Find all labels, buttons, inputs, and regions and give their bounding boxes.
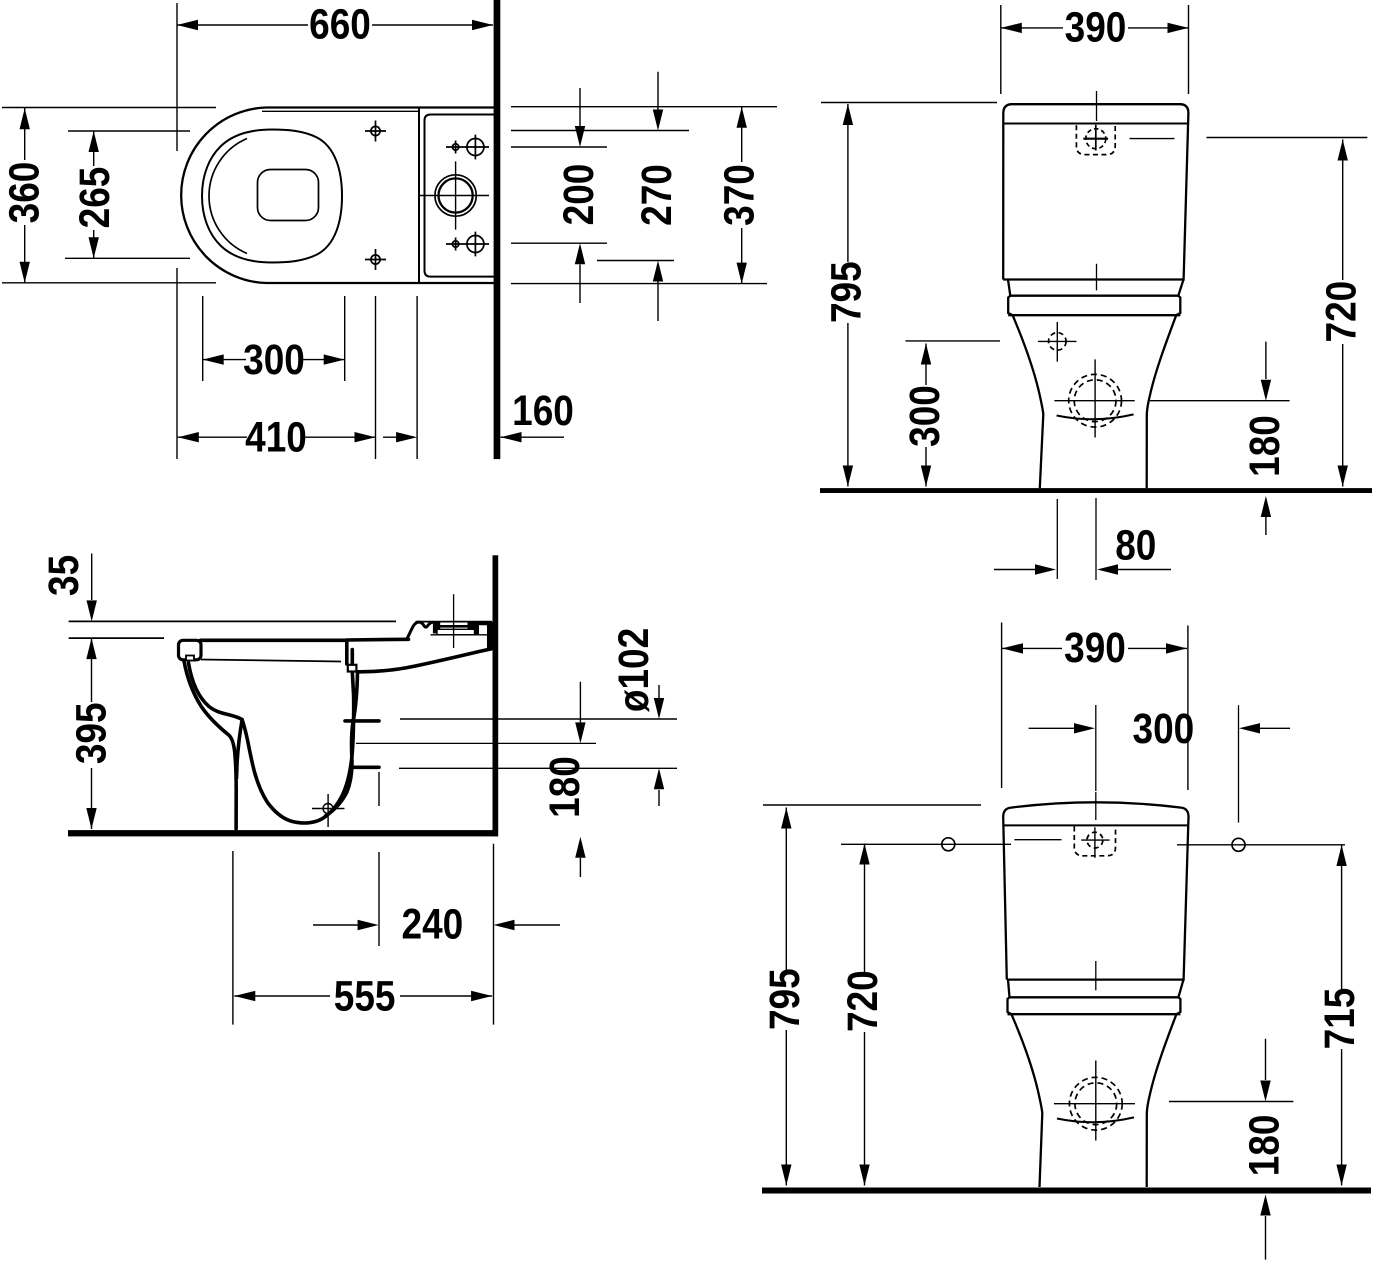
svg-text:160: 160 [512, 387, 574, 434]
svg-text:410: 410 [245, 414, 307, 461]
svg-text:240: 240 [402, 901, 464, 948]
svg-text:390: 390 [1065, 4, 1127, 51]
svg-text:795: 795 [761, 968, 808, 1030]
svg-text:80: 80 [1115, 522, 1156, 569]
svg-text:300: 300 [1133, 705, 1195, 752]
svg-text:390: 390 [1064, 624, 1126, 671]
svg-text:200: 200 [555, 164, 602, 226]
svg-text:300: 300 [243, 336, 305, 383]
svg-text:35: 35 [41, 555, 88, 596]
svg-text:360: 360 [1, 162, 48, 224]
svg-text:720: 720 [1318, 281, 1365, 343]
svg-text:270: 270 [633, 164, 680, 226]
svg-text:795: 795 [823, 261, 870, 323]
svg-text:720: 720 [840, 970, 887, 1032]
svg-text:180: 180 [1241, 1115, 1288, 1177]
svg-text:300: 300 [901, 385, 948, 447]
svg-text:180: 180 [1241, 415, 1288, 477]
svg-text:660: 660 [309, 1, 371, 48]
svg-text:715: 715 [1317, 988, 1364, 1050]
svg-text:265: 265 [71, 167, 118, 229]
svg-text:395: 395 [68, 702, 115, 764]
svg-text:370: 370 [716, 164, 763, 226]
svg-text:555: 555 [334, 973, 396, 1020]
svg-text:ø102: ø102 [610, 628, 657, 712]
svg-text:180: 180 [541, 756, 588, 818]
